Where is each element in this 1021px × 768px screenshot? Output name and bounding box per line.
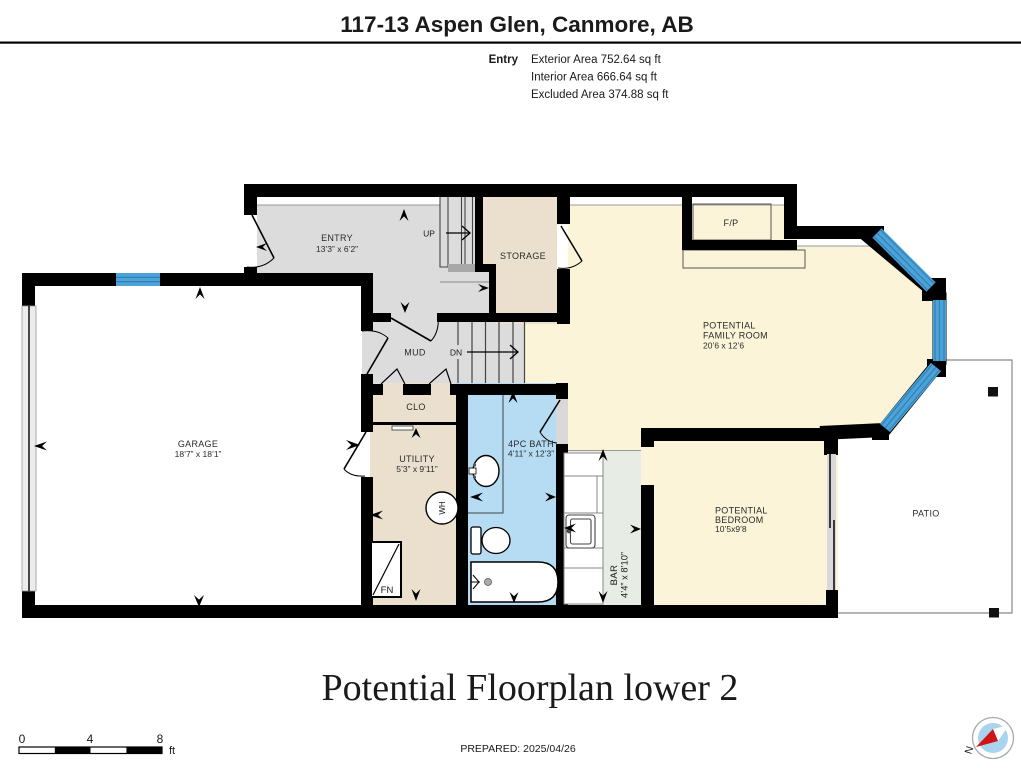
svg-text:Excluded Area 374.88 sq ft: Excluded Area 374.88 sq ft xyxy=(531,89,669,101)
svg-text:10’5x9’8: 10’5x9’8 xyxy=(715,524,747,534)
svg-text:4: 4 xyxy=(87,732,94,746)
svg-text:13’3” x 6’2”: 13’3” x 6’2” xyxy=(316,244,358,254)
svg-text:ENTRY: ENTRY xyxy=(321,233,353,243)
svg-text:GARAGE: GARAGE xyxy=(178,439,218,449)
svg-text:5’3” x 9’11”: 5’3” x 9’11” xyxy=(396,464,438,474)
svg-text:BAR: BAR xyxy=(609,565,620,586)
svg-text:Interior Area 666.64 sq ft: Interior Area 666.64 sq ft xyxy=(531,72,658,84)
svg-text:FAMILY ROOM: FAMILY ROOM xyxy=(703,331,768,341)
svg-text:F/P: F/P xyxy=(724,218,739,228)
svg-text:Entry: Entry xyxy=(489,54,519,66)
svg-text:20’6 x 12’6: 20’6 x 12’6 xyxy=(703,341,744,351)
svg-text:WH: WH xyxy=(438,501,447,515)
svg-text:4’11” x 12’3”: 4’11” x 12’3” xyxy=(508,449,554,459)
svg-text:UTILITY: UTILITY xyxy=(399,454,435,464)
svg-text:117-13 Aspen Glen, Canmore, AB: 117-13 Aspen Glen, Canmore, AB xyxy=(340,12,693,37)
svg-text:DN: DN xyxy=(450,348,462,358)
svg-text:ft: ft xyxy=(169,745,175,757)
svg-text:FN: FN xyxy=(381,585,394,596)
svg-text:MUD: MUD xyxy=(404,348,426,358)
svg-text:PREPARED: 2025/04/26: PREPARED: 2025/04/26 xyxy=(460,743,576,755)
svg-text:PATIO: PATIO xyxy=(912,509,939,519)
svg-text:4’4” x 8’10”: 4’4” x 8’10” xyxy=(620,552,630,598)
svg-text:8: 8 xyxy=(157,732,164,746)
svg-text:STORAGE: STORAGE xyxy=(500,251,546,261)
svg-text:CLO: CLO xyxy=(406,402,425,412)
svg-text:POTENTIAL: POTENTIAL xyxy=(703,321,756,331)
svg-text:4PC BATH: 4PC BATH xyxy=(508,439,554,449)
svg-text:Exterior Area 752.64 sq ft: Exterior Area 752.64 sq ft xyxy=(531,54,662,66)
svg-text:0: 0 xyxy=(19,732,26,746)
svg-text:18’7” x 18’1”: 18’7” x 18’1” xyxy=(175,449,222,459)
svg-text:Potential Floorplan lower 2: Potential Floorplan lower 2 xyxy=(322,667,739,709)
svg-text:UP: UP xyxy=(423,229,435,239)
svg-text:POTENTIAL: POTENTIAL xyxy=(715,506,768,516)
